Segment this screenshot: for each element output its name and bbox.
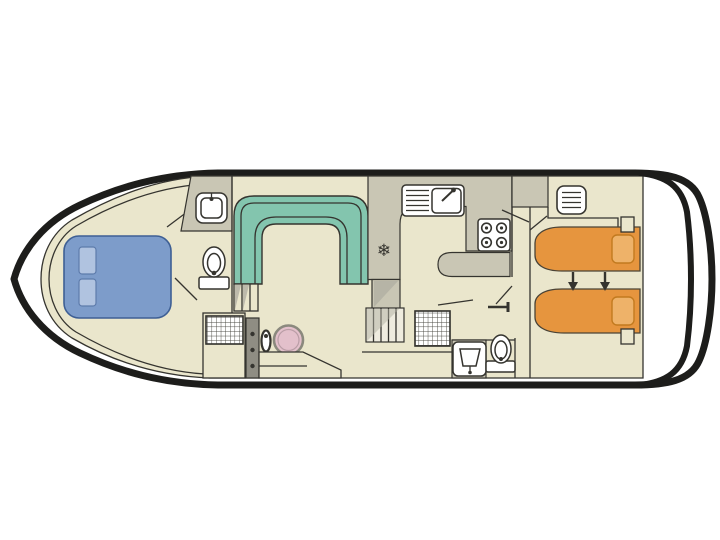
floor-hatch	[415, 311, 450, 346]
pillow	[612, 235, 634, 263]
bedside-step	[621, 217, 634, 232]
pillow	[79, 279, 96, 306]
washbasin-icon	[453, 342, 486, 376]
bedside-step	[621, 329, 634, 344]
pillow	[79, 247, 96, 274]
boat-floor-plan: ❄	[0, 0, 720, 540]
aft-bathroom	[452, 335, 515, 378]
galley-counter-pill	[438, 253, 510, 277]
wardrobe	[512, 176, 548, 207]
washbasin-icon	[196, 193, 227, 223]
port-cabinet	[203, 313, 245, 378]
starboard-hatch	[415, 311, 450, 346]
floor-hatch	[206, 316, 243, 344]
fwd-steps	[234, 284, 258, 311]
galley-sink-icon	[402, 185, 464, 216]
fridge-snowflake-icon: ❄	[377, 241, 391, 261]
vent-grille-icon	[557, 186, 586, 214]
mid-stairs	[366, 280, 404, 343]
pillow	[612, 297, 634, 325]
stove-burners-icon	[478, 219, 510, 251]
floor-plan-canvas: ❄	[0, 0, 720, 540]
throttle-icon	[262, 331, 271, 352]
